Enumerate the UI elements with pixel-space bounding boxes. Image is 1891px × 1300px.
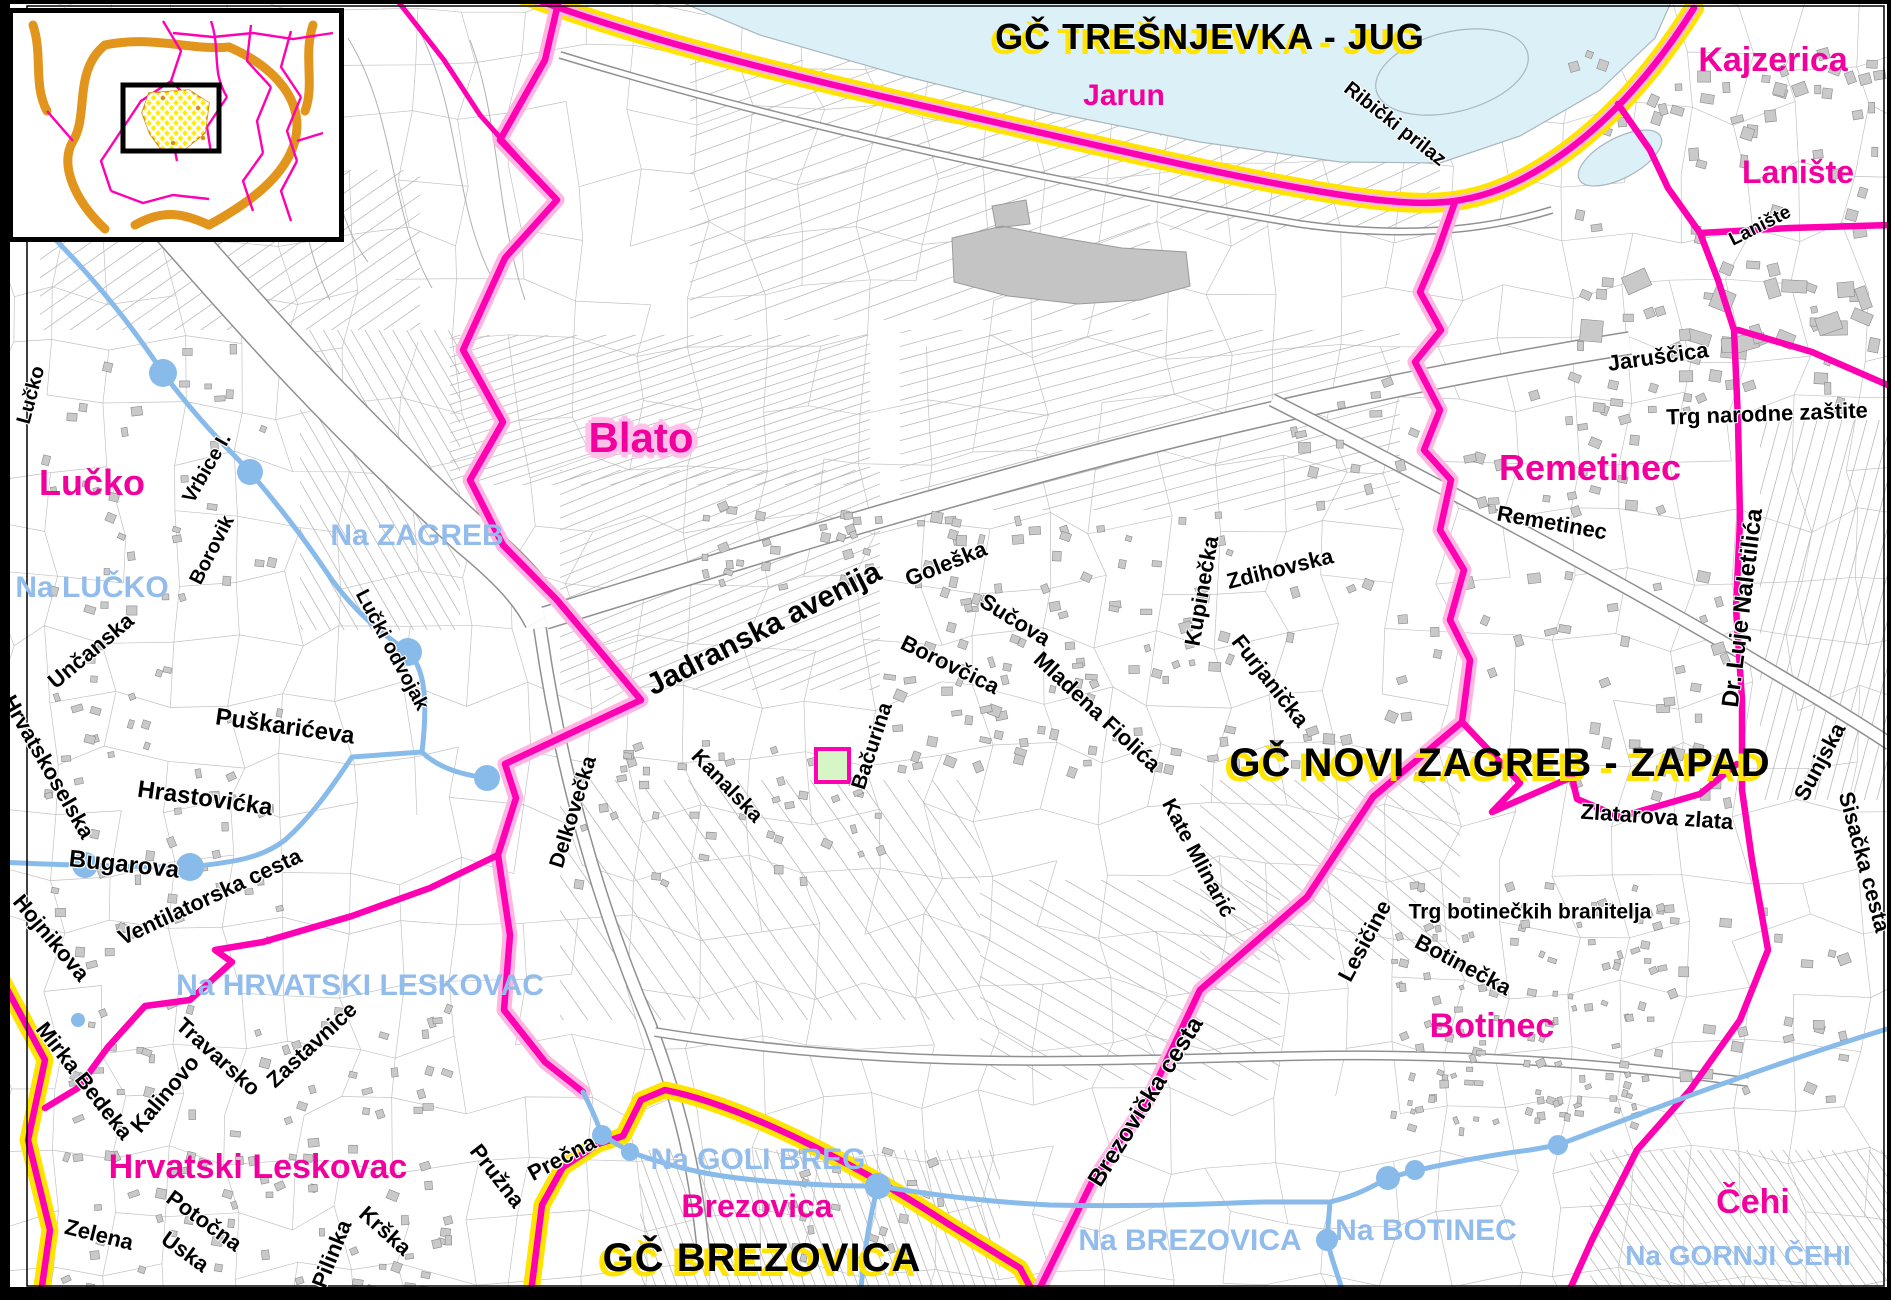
highlighted-parcel[interactable]	[814, 747, 851, 784]
map-canvas[interactable]: GČ TREŠNJEVKA - JUGGČ NOVI ZAGREB - ZAPA…	[0, 0, 1891, 1300]
overview-inset-map[interactable]	[8, 8, 344, 242]
